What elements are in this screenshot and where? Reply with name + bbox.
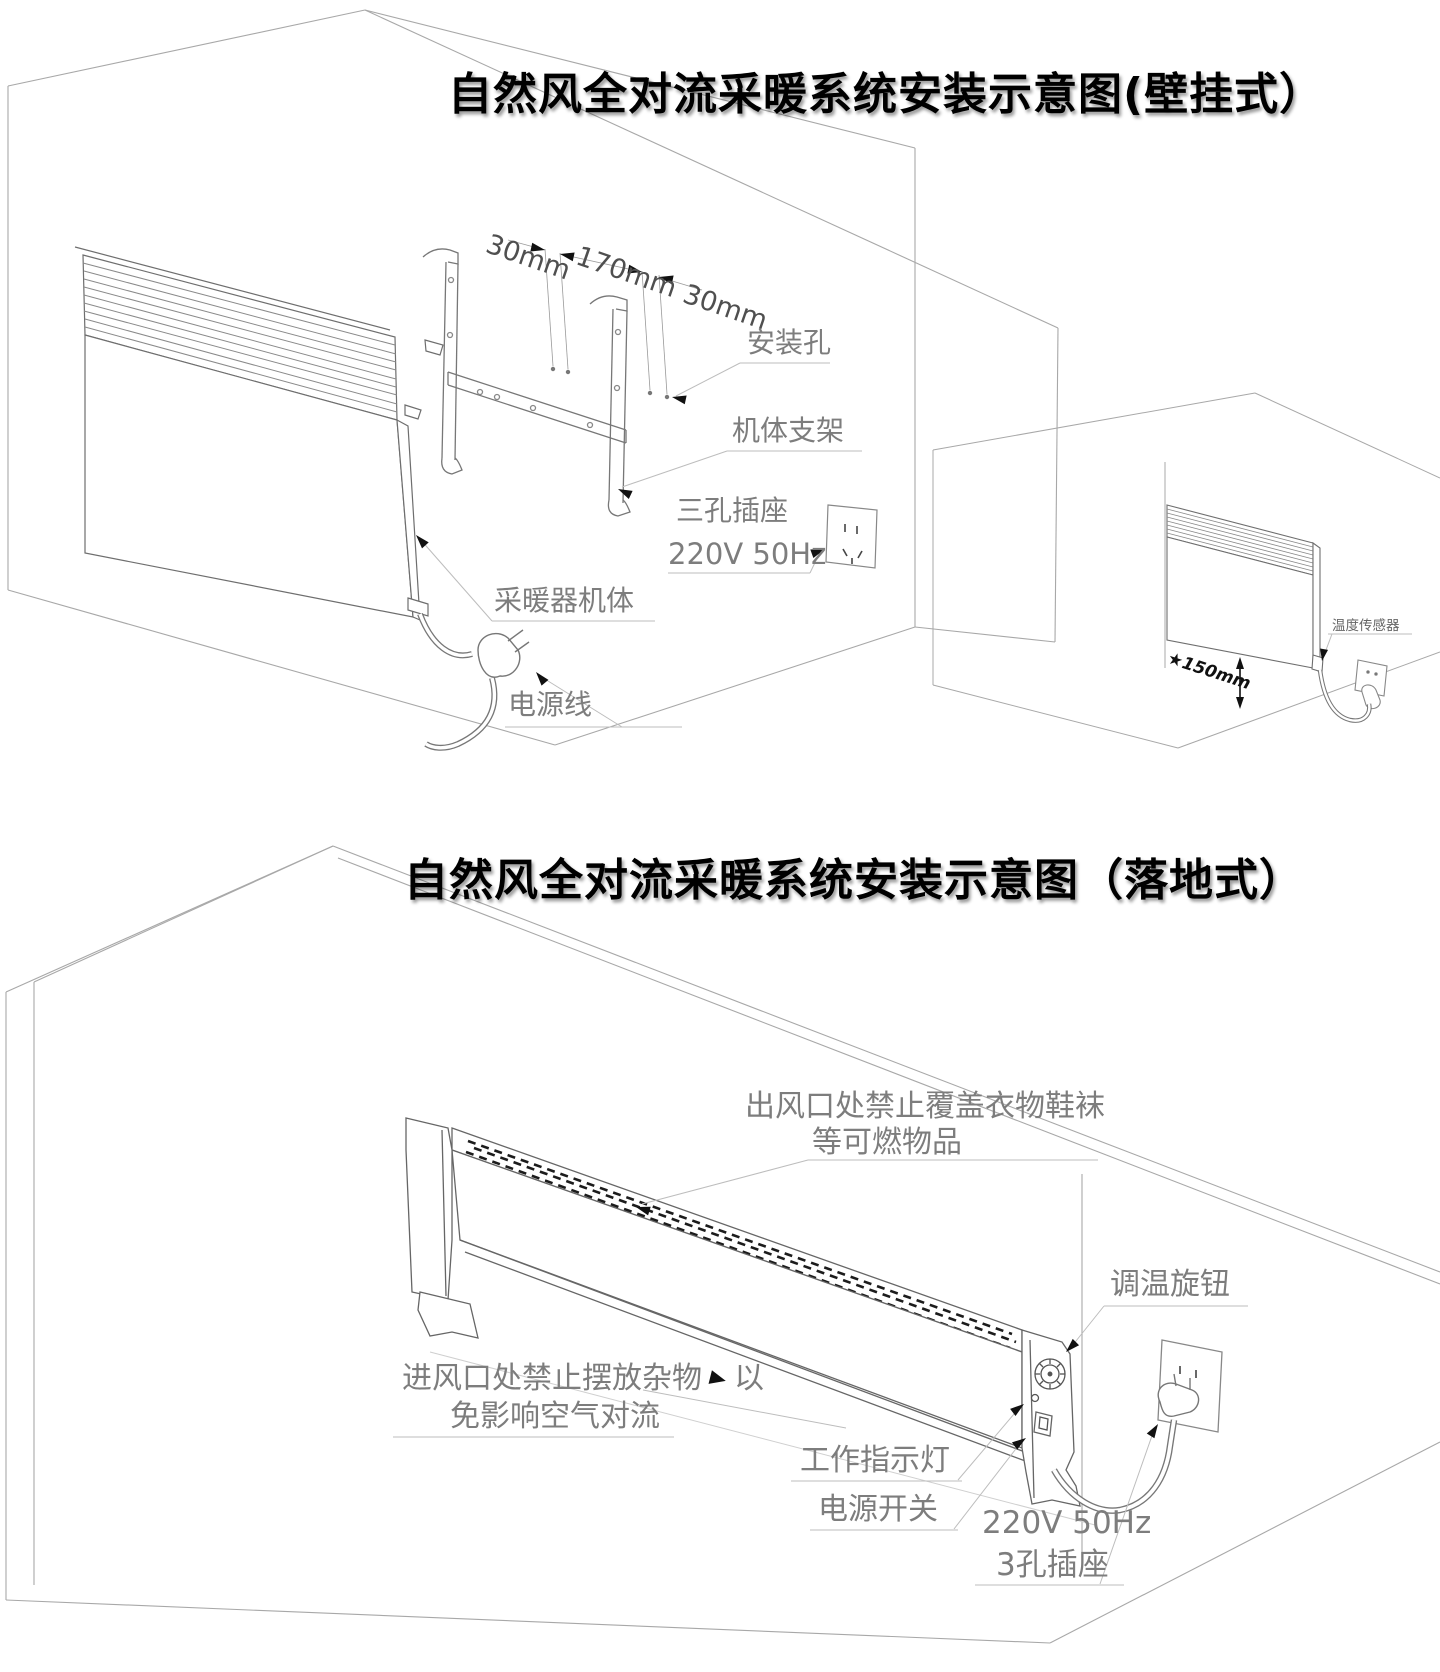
inline-arrow-icon — [709, 1370, 728, 1387]
mounting-bracket — [423, 249, 630, 516]
temperature-sensor — [1312, 655, 1323, 672]
inlet-warning-text2: 以 — [734, 1362, 764, 1395]
socket-power-label: 220V 50Hz — [668, 539, 826, 571]
wall-socket — [826, 505, 877, 568]
power-plug — [478, 630, 529, 677]
floor-socket-power-label: 220V 50Hz — [982, 1506, 1151, 1540]
mounting-hole-label: 安装孔 — [747, 328, 831, 359]
thermostat-knob — [1035, 1359, 1065, 1389]
power-cord — [420, 614, 494, 748]
wall-heater — [75, 247, 443, 620]
inlet-warning-text: 进风口处禁止摆放杂物 — [402, 1362, 702, 1395]
knob-label: 调温旋钮 — [1110, 1268, 1230, 1301]
installation-diagram-page: 自然风全对流采暖系统安装示意图(壁挂式） 自然风全对流采暖系统安装示意图（落地式… — [0, 0, 1440, 1672]
heater-body-label: 采暖器机体 — [494, 586, 634, 617]
wall-diagram-title: 自然风全对流采暖系统安装示意图(壁挂式） — [448, 58, 1324, 122]
bracket-hook-behind — [405, 405, 421, 419]
socket-type-label: 三孔插座 — [676, 496, 788, 527]
bracket-label: 机体支架 — [732, 416, 844, 447]
floor-socket-type-label: 3孔插座 — [996, 1548, 1109, 1582]
inlet-warning-line1: 进风口处禁止摆放杂物 以 — [402, 1362, 764, 1395]
wall-heater-small — [1167, 505, 1323, 672]
indicator-label: 工作指示灯 — [800, 1444, 950, 1477]
left-foot — [418, 1292, 478, 1338]
floor-heater — [406, 1118, 1095, 1525]
power-cord-label: 电源线 — [508, 690, 592, 721]
small-room-socket — [1355, 660, 1387, 709]
bracket-hook-behind — [425, 340, 443, 355]
inlet-warning-line2: 免影响空气对流 — [450, 1400, 660, 1433]
temperature-sensor-label: 温度传感器 — [1332, 614, 1400, 634]
switch-label: 电源开关 — [818, 1493, 938, 1526]
indicator-light — [1032, 1395, 1039, 1402]
outlet-warning-line1: 出风口处禁止覆盖衣物鞋袜 — [745, 1090, 1105, 1123]
outlet-warning-line2: 等可燃物品 — [812, 1126, 962, 1159]
floor-diagram-title: 自然风全对流采暖系统安装示意图（落地式） — [404, 844, 1304, 908]
